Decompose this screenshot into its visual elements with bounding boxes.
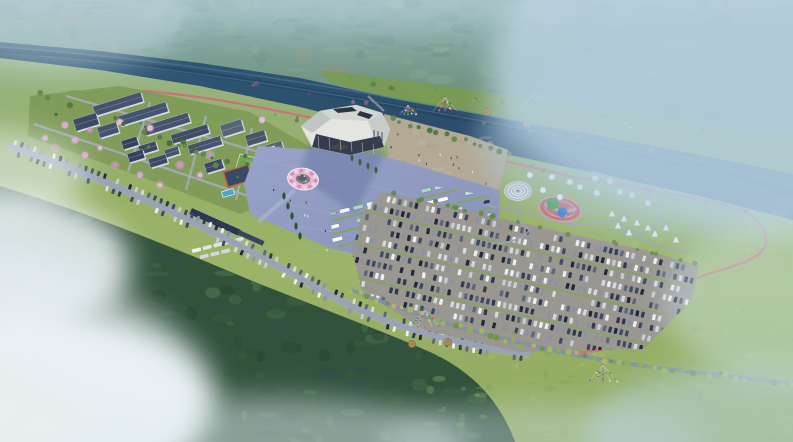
site-rendering-canvas: [0, 0, 793, 442]
aerial-resort-rendering: [0, 0, 793, 442]
